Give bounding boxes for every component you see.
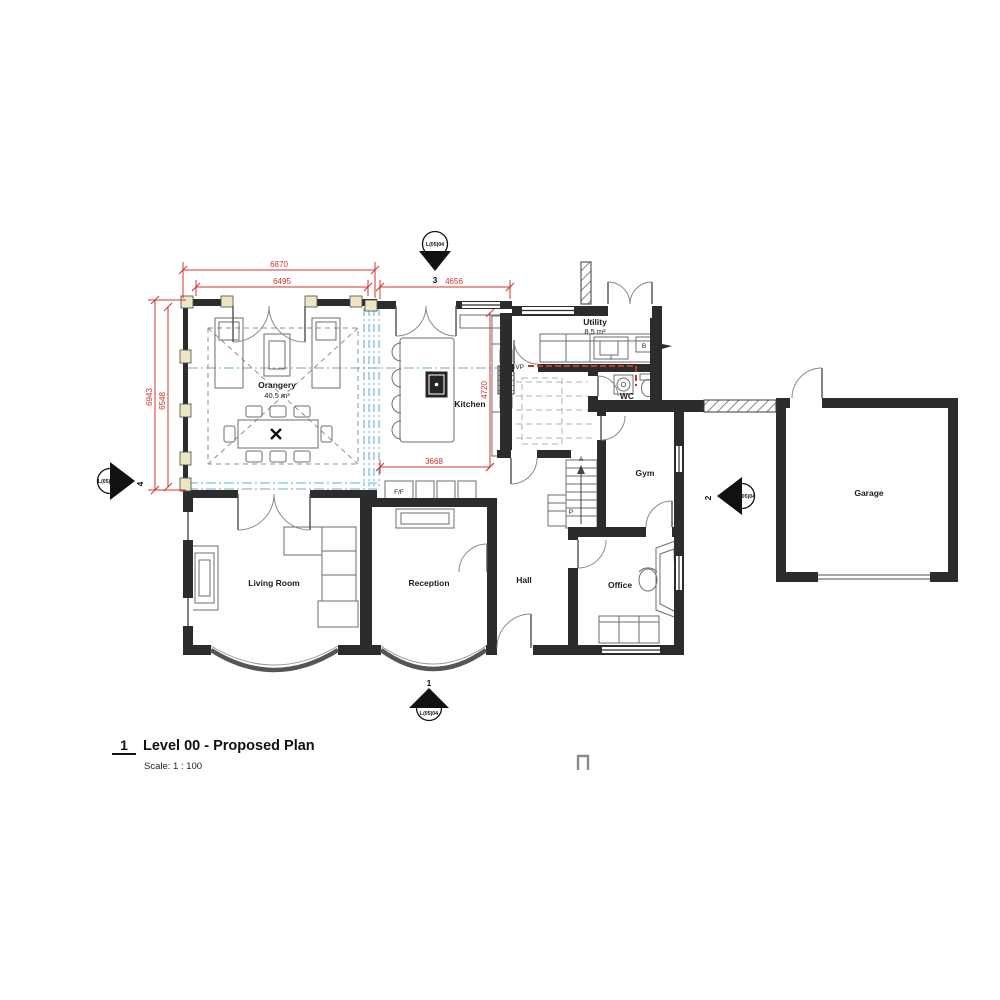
section-marker-bottom: L(05)04 1: [409, 678, 449, 721]
svg-text:4: 4: [135, 481, 145, 486]
annotation-boiler: B: [642, 343, 646, 350]
title-block: 1 Level 00 - Proposed Plan Scale: 1 : 10…: [112, 737, 315, 772]
dim-text-6870: 6870: [270, 260, 288, 269]
room-area-orangery: 40.5 m²: [264, 391, 290, 400]
svg-text:2: 2: [703, 495, 713, 500]
svg-text:L(05)04: L(05)04: [737, 494, 755, 500]
dim-text-6943: 6943: [145, 388, 154, 406]
floor-plan-svg: 6870 6495 4656 6943 6548 4720 3668 Orang…: [0, 0, 1000, 1000]
room-label-utility: Utility: [583, 317, 607, 327]
room-label-gym: Gym: [636, 468, 655, 478]
column-symbol: [578, 756, 588, 770]
room-label-living-room: Living Room: [248, 578, 300, 588]
dimensions: [148, 262, 514, 494]
annotation-fridge-freezer: F/F: [394, 489, 404, 496]
section-marker-left: L(05)04 4: [98, 462, 146, 500]
annotation-pantry: P: [569, 509, 573, 516]
annotation-stair-arrow: A: [579, 456, 584, 463]
drawing-number: 1: [120, 737, 128, 753]
drawing-sheet: 6870 6495 4656 6943 6548 4720 3668 Orang…: [0, 0, 1000, 1000]
drawing-title: Level 00 - Proposed Plan: [143, 738, 315, 754]
room-label-hall: Hall: [516, 575, 532, 585]
staircase: [548, 460, 597, 528]
room-label-office: Office: [608, 580, 632, 590]
room-label-reception: Reception: [408, 578, 449, 588]
svg-text:L(05)04: L(05)04: [420, 711, 438, 717]
reception-furniture: [396, 509, 454, 528]
doors: [233, 282, 822, 648]
annotation-svp: SVP: [511, 364, 524, 371]
svg-text:3: 3: [433, 275, 438, 285]
pillar-hatched: [581, 262, 591, 304]
garden-wall-hatched: [704, 400, 776, 412]
orangery-furniture: [215, 318, 340, 462]
svg-text:1: 1: [427, 678, 432, 688]
walls: [183, 299, 958, 655]
drawing-scale: Scale: 1 : 100: [144, 761, 202, 772]
office-furniture: [599, 540, 682, 643]
living-room-furniture: [191, 527, 358, 627]
dim-text-4656: 4656: [445, 277, 463, 286]
section-marker-right: L(05)04 2: [703, 477, 755, 515]
room-label-kitchen: Kitchen: [454, 399, 485, 409]
landing-over-dashed: [516, 378, 594, 444]
room-label-garage: Garage: [854, 488, 884, 498]
dim-text-3668: 3668: [425, 457, 443, 466]
room-area-utility: 8.5 m²: [584, 327, 606, 336]
dim-text-6495: 6495: [273, 277, 291, 286]
svg-text:L(05)04: L(05)04: [98, 479, 116, 485]
room-label-wc: WC: [620, 391, 634, 401]
wall-openings: [183, 297, 930, 655]
room-label-orangery: Orangery: [258, 380, 296, 390]
svg-text:L(05)04: L(05)04: [426, 242, 444, 248]
dim-text-6548: 6548: [158, 392, 167, 410]
dim-text-4720: 4720: [480, 381, 489, 399]
